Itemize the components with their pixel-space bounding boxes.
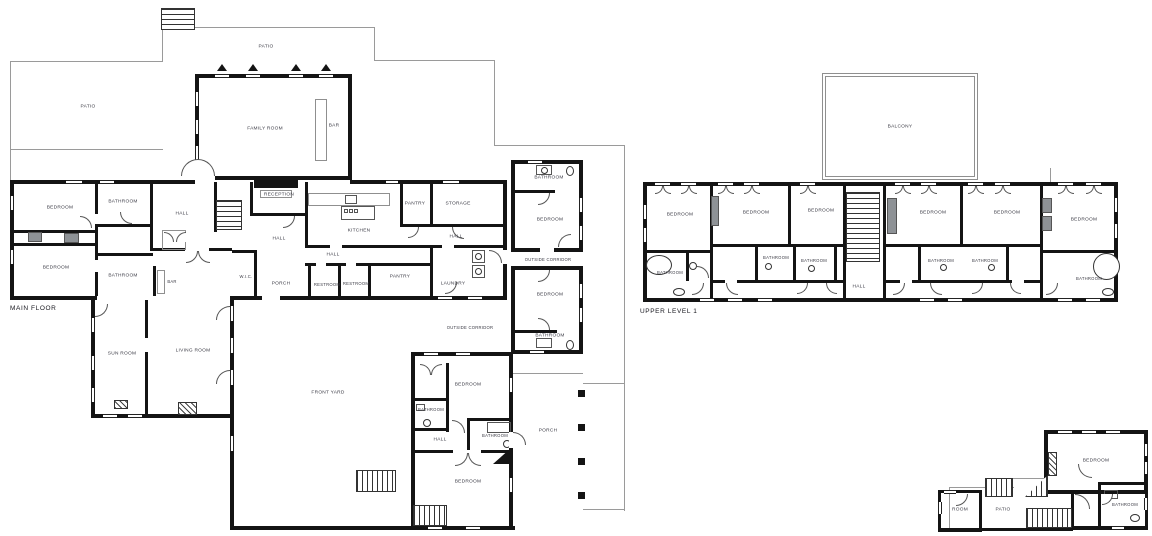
room-label-patio: PATIO <box>259 46 274 51</box>
window <box>1058 430 1072 434</box>
window <box>728 298 742 302</box>
window <box>443 180 459 184</box>
closet-hatch <box>1042 198 1052 213</box>
room-label-bar: BAR <box>329 125 340 130</box>
window <box>944 490 956 494</box>
patio-edge-line <box>374 60 495 61</box>
toilet-icon <box>566 340 574 350</box>
room-label-reception: RECEPTION <box>264 194 294 199</box>
patio-edge-line <box>374 27 375 61</box>
stairs <box>985 478 1013 497</box>
wall <box>95 253 153 256</box>
stairs <box>413 505 447 526</box>
room-label-bathroom: BATHROOM <box>418 408 444 412</box>
closet-hatch <box>711 196 719 226</box>
closet-hatch <box>887 198 897 234</box>
door-arc <box>216 370 230 384</box>
room-label-room: ROOM <box>952 509 968 514</box>
room-label-bathroom: BATHROOM <box>1076 277 1102 281</box>
wall <box>503 180 507 300</box>
room-label-bedroom: BEDROOM <box>994 212 1021 217</box>
bar-counter <box>157 270 165 294</box>
roof-edge-line <box>494 145 625 146</box>
cooktop-icon <box>349 209 353 213</box>
window <box>319 74 333 78</box>
fireplace-hatch <box>178 402 197 415</box>
window-marker-icon <box>321 64 331 71</box>
window <box>1058 298 1072 302</box>
wall <box>788 186 791 244</box>
wall <box>430 182 433 227</box>
window <box>1144 462 1148 474</box>
sink-counter <box>536 338 552 348</box>
window <box>246 74 260 78</box>
wall <box>960 186 963 244</box>
window <box>509 378 513 392</box>
heater-hatch <box>114 400 128 409</box>
door-arc <box>198 251 210 263</box>
deck-edge-line <box>1013 478 1046 479</box>
wall <box>713 244 843 247</box>
room-label-porch: PORCH <box>272 283 291 288</box>
room-label-bedroom: BEDROOM <box>537 219 564 224</box>
door-arc <box>1075 494 1090 509</box>
room-label-balcony: BALCONY <box>888 126 913 131</box>
toilet-icon <box>1130 514 1140 522</box>
wall <box>95 224 153 227</box>
wall <box>305 182 308 248</box>
window <box>438 296 452 300</box>
sink-icon <box>940 264 947 271</box>
window <box>758 298 772 302</box>
window <box>509 478 513 492</box>
sink-icon <box>541 167 548 174</box>
window-marker-icon <box>217 64 227 71</box>
closet-hatch <box>28 232 42 242</box>
cooktop-icon <box>354 209 358 213</box>
room-label-sun-room: SUN ROOM <box>108 353 136 358</box>
patio-edge-line <box>10 149 163 150</box>
patio-edge-line <box>162 27 163 61</box>
wall <box>10 296 97 300</box>
wall <box>467 418 513 421</box>
room-label-bedroom: BEDROOM <box>47 207 74 212</box>
window <box>195 92 199 106</box>
door-opening <box>262 296 280 300</box>
room-label-hall: HALL <box>853 286 866 291</box>
room-label-front-yard: FRONT YARD <box>311 392 344 397</box>
window <box>128 414 142 418</box>
room-label-wic: W.I.C. <box>240 275 253 279</box>
window <box>700 298 714 302</box>
room-label-pantry: PANTRY <box>405 203 426 208</box>
room-label-pantry: PANTRY <box>390 276 411 281</box>
window <box>643 205 647 219</box>
window <box>1144 498 1148 510</box>
sink-icon <box>808 265 815 272</box>
room-label-bathroom: BATHROOM <box>108 201 137 206</box>
wall <box>150 182 153 250</box>
door-opening <box>540 248 554 252</box>
porch-post <box>578 424 585 431</box>
wall <box>1071 526 1148 530</box>
cooktop-icon <box>344 209 348 213</box>
window <box>468 296 482 300</box>
roof-edge-line <box>624 145 625 511</box>
porch-post <box>578 458 585 465</box>
room-label-patio: PATIO <box>81 106 96 111</box>
room-label-living-room: LIVING ROOM <box>176 350 211 355</box>
room-label-hall: HALL <box>450 236 463 241</box>
door-opening <box>145 338 148 352</box>
wall <box>886 244 1040 247</box>
room-label-porch: PORCH <box>539 430 558 435</box>
patio-edge-line <box>10 61 163 62</box>
closet-hatch <box>64 233 79 243</box>
bathtub <box>487 422 511 433</box>
room-label-restroom: RESTROOM <box>343 282 369 286</box>
room-label-bedroom: BEDROOM <box>808 210 835 215</box>
room-label-bedroom: BEDROOM <box>455 481 482 486</box>
window <box>1114 224 1118 238</box>
sink-icon <box>689 262 697 270</box>
wall <box>153 266 156 296</box>
wall <box>647 250 710 253</box>
window <box>230 306 234 321</box>
door-arc <box>408 227 419 238</box>
wall <box>250 182 253 215</box>
window <box>195 120 199 134</box>
door-opening <box>316 263 326 266</box>
window <box>579 284 583 298</box>
bar-counter <box>315 99 327 161</box>
door-opening <box>330 245 342 248</box>
window <box>1114 198 1118 212</box>
window <box>466 526 480 530</box>
room-label-bathroom: BATHROOM <box>535 335 564 340</box>
window <box>195 146 199 160</box>
window <box>91 318 95 332</box>
appliance-drum-icon <box>475 268 482 275</box>
window <box>103 414 117 418</box>
wall <box>400 182 403 227</box>
wall <box>446 363 449 432</box>
room-label-bathroom: BATHROOM <box>108 275 137 280</box>
room-label-storage: STORAGE <box>445 203 470 208</box>
floor-plan-canvas: PATIO PATIO FAMILY ROOM BAR BEDROOM BATH… <box>0 0 1152 536</box>
room-label-bedroom: BEDROOM <box>43 267 70 272</box>
window <box>10 196 14 210</box>
porch-edge-line <box>513 373 583 374</box>
window <box>424 352 438 356</box>
door-opening <box>95 260 98 272</box>
room-label-bedroom: BEDROOM <box>667 214 694 219</box>
window <box>1082 430 1096 434</box>
wall <box>415 398 449 401</box>
room-label-bedroom: BEDROOM <box>537 294 564 299</box>
sink-icon <box>765 263 772 270</box>
window <box>91 388 95 402</box>
wall <box>467 418 470 453</box>
room-label-hall: HALL <box>176 213 189 218</box>
porch-post <box>578 492 585 499</box>
door-arc <box>186 251 198 263</box>
window <box>1106 430 1120 434</box>
room-label-bathroom: BATHROOM <box>657 271 683 275</box>
window <box>230 370 234 385</box>
toilet-icon <box>673 288 685 296</box>
room-label-hall: HALL <box>273 238 286 243</box>
plan-title-main-floor: MAIN FLOOR <box>10 306 56 313</box>
window <box>1086 298 1100 302</box>
room-label-bedroom: BEDROOM <box>1071 219 1098 224</box>
room-label-bedroom: BEDROOM <box>743 212 770 217</box>
window <box>100 180 114 184</box>
room-label-bathroom: BATHROOM <box>534 177 563 182</box>
window <box>10 250 14 264</box>
kitchen-sink <box>345 195 357 204</box>
window <box>579 308 583 322</box>
door-opening <box>442 245 454 248</box>
plan-title-upper-level-1: UPPER LEVEL 1 <box>640 309 697 316</box>
room-label-kitchen: KITCHEN <box>348 230 371 235</box>
door-opening <box>503 250 507 264</box>
closet-hatch <box>1048 452 1057 476</box>
wall <box>515 330 557 333</box>
toilet-icon <box>566 166 574 176</box>
room-label-family-room: FAMILY ROOM <box>247 128 283 133</box>
room-label-outside-corridor: OUTSIDE CORRIDOR <box>447 326 494 330</box>
room-label-bathroom: BATHROOM <box>482 434 508 438</box>
window <box>579 198 583 212</box>
room-label-bathroom: BATHROOM <box>801 259 827 263</box>
room-label-hall: HALL <box>434 439 447 444</box>
wall <box>755 247 758 280</box>
wall <box>918 247 921 280</box>
room-label-bathroom: BATHROOM <box>972 259 998 263</box>
roof-edge-line <box>583 509 624 510</box>
window <box>428 526 442 530</box>
wall <box>10 243 98 246</box>
room-label-bedroom: BEDROOM <box>1083 460 1110 465</box>
window <box>643 228 647 242</box>
toilet-icon <box>1102 288 1114 296</box>
wall <box>145 300 148 414</box>
door-arc <box>489 250 502 263</box>
door-arc <box>80 216 92 228</box>
room-label-bathroom: BATHROOM <box>928 259 954 263</box>
wall <box>232 250 256 253</box>
stairs <box>1026 508 1072 528</box>
stairs <box>216 200 242 230</box>
stairs <box>356 470 396 492</box>
toilet-icon <box>423 419 431 427</box>
window <box>456 352 470 356</box>
window <box>386 180 398 184</box>
wall <box>415 428 449 431</box>
room-label-hall: HALL <box>327 254 340 259</box>
window <box>579 226 583 240</box>
window <box>1144 444 1148 456</box>
door-arc <box>513 432 526 445</box>
door-arc <box>95 304 108 317</box>
window <box>528 160 542 164</box>
entry-wall <box>254 180 298 188</box>
window <box>920 298 934 302</box>
sink-icon <box>988 264 995 271</box>
wall-stub-line <box>1050 168 1051 182</box>
door-arc <box>181 159 198 176</box>
wall <box>793 247 796 280</box>
room-label-patio: PATIO <box>996 509 1011 514</box>
window <box>948 298 962 302</box>
wall <box>95 182 98 296</box>
wall <box>430 245 433 296</box>
room-label-bedroom: BEDROOM <box>920 212 947 217</box>
wall <box>10 230 98 233</box>
room-label-restroom: RESTROOM <box>314 283 340 287</box>
door-arc <box>283 216 295 228</box>
window <box>230 436 234 451</box>
room-label-bathroom: BATHROOM <box>1112 503 1138 507</box>
door-opening <box>346 263 356 266</box>
roof-edge-line <box>583 383 624 384</box>
wall <box>250 213 307 216</box>
bedroom-wing-walls <box>411 352 513 530</box>
wall <box>1006 247 1009 280</box>
stairs <box>161 8 195 30</box>
window <box>91 356 95 370</box>
room-label-outside-corridor: OUTSIDE CORRIDOR <box>525 258 572 262</box>
closet-hatch <box>1042 216 1052 231</box>
window <box>530 350 544 354</box>
window <box>1112 526 1124 530</box>
window <box>215 74 229 78</box>
porch-post <box>578 390 585 397</box>
window <box>289 74 303 78</box>
wall <box>350 180 507 184</box>
window <box>66 180 82 184</box>
window <box>938 502 942 514</box>
room-label-laundry: LAUNDRY <box>441 283 466 288</box>
room-label-bedroom: BEDROOM <box>455 384 482 389</box>
appliance-drum-icon <box>475 253 482 260</box>
window-marker-icon <box>291 64 301 71</box>
room-label-bar: BAR <box>167 280 176 284</box>
window <box>230 338 234 353</box>
wall <box>834 247 837 280</box>
room-label-bathroom: BATHROOM <box>763 256 789 260</box>
door-arc <box>216 306 230 320</box>
patio-edge-line <box>10 61 11 180</box>
wall <box>254 250 257 296</box>
wall <box>230 296 234 530</box>
door-arc <box>120 212 132 224</box>
wall <box>308 263 311 296</box>
stairs <box>846 192 880 262</box>
patio-edge-line <box>494 60 495 146</box>
window-marker-icon <box>248 64 258 71</box>
